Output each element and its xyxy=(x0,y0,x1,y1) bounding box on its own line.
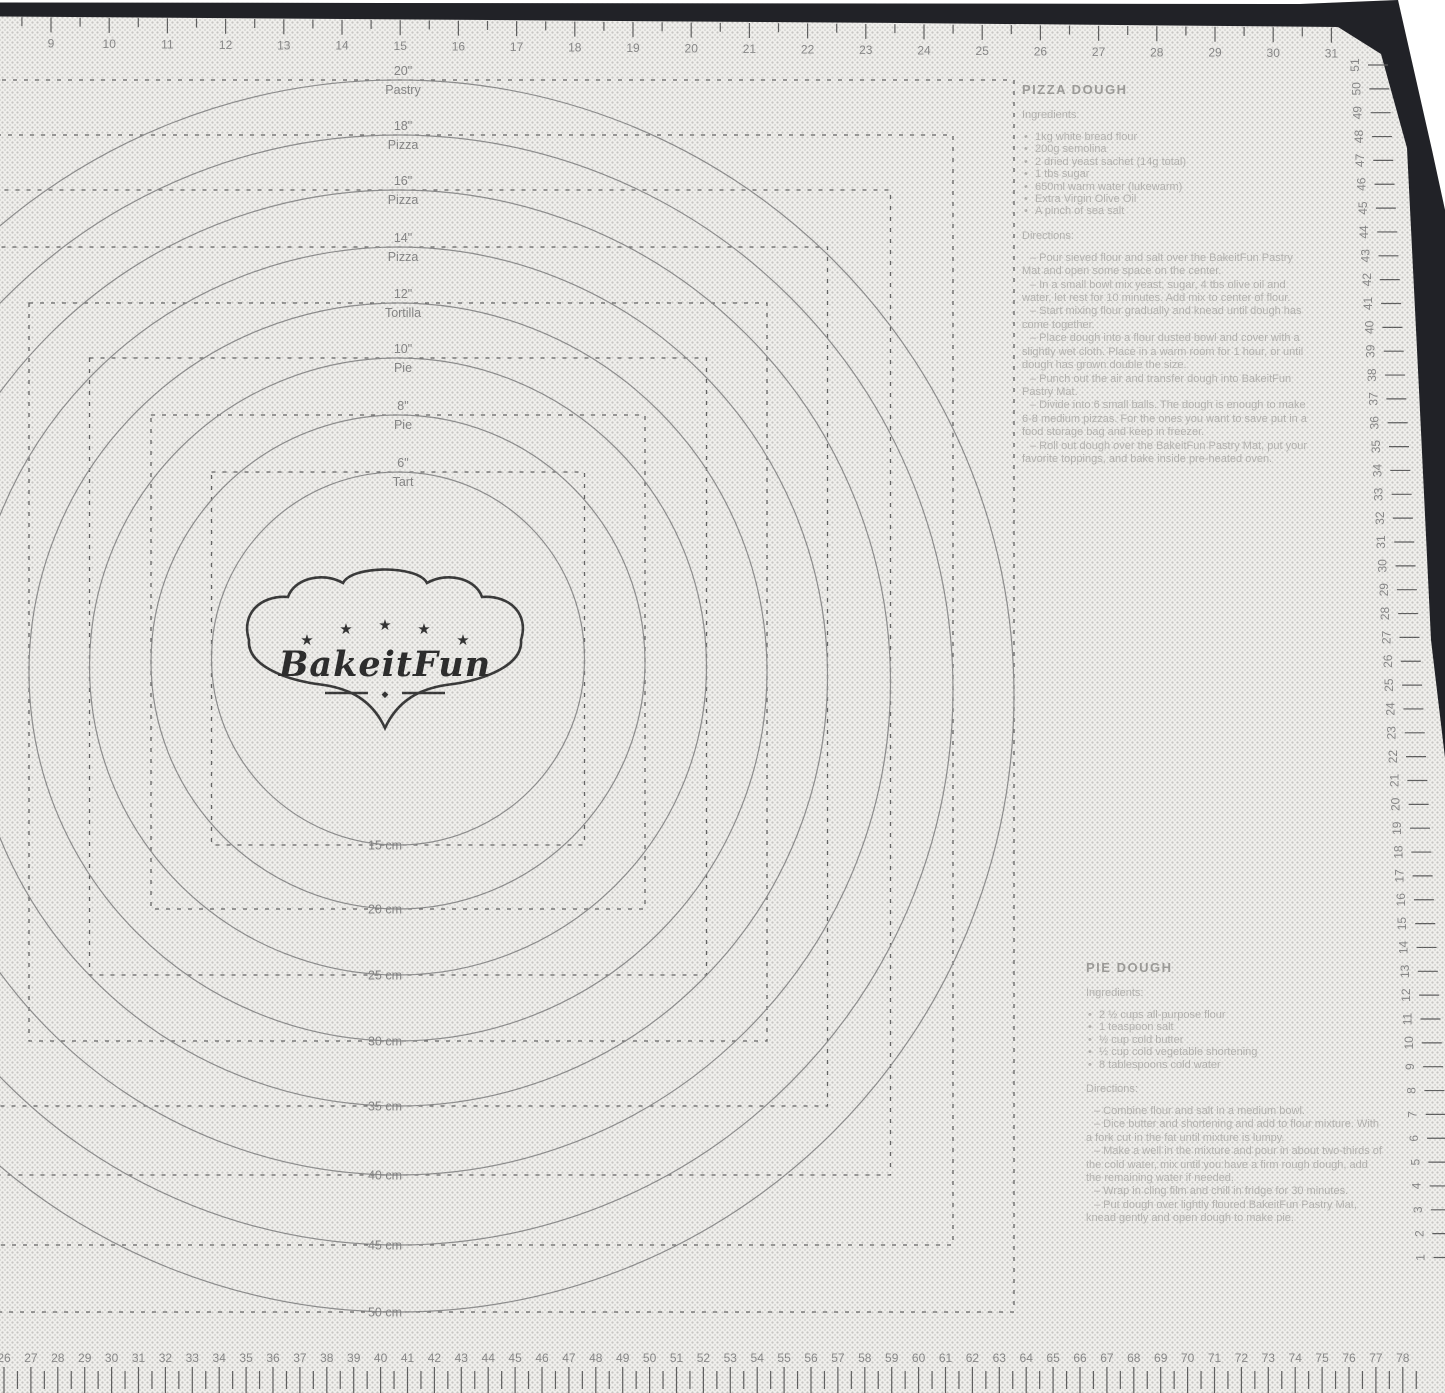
svg-text:65: 65 xyxy=(1046,1351,1060,1365)
svg-text:10": 10" xyxy=(394,342,412,356)
svg-text:57: 57 xyxy=(831,1351,845,1365)
svg-text:17: 17 xyxy=(1393,869,1407,883)
svg-text:21: 21 xyxy=(1387,774,1401,788)
svg-text:25: 25 xyxy=(976,44,990,58)
svg-text:43: 43 xyxy=(455,1351,469,1365)
star-icon: ★ xyxy=(378,616,391,634)
svg-text:10: 10 xyxy=(103,37,117,51)
svg-text:39: 39 xyxy=(1364,344,1378,358)
svg-text:Pizza: Pizza xyxy=(388,193,419,207)
svg-text:46: 46 xyxy=(535,1351,549,1365)
pizza-directions: – Pour sieved flour and salt over the Ba… xyxy=(1022,252,1314,467)
svg-text:9: 9 xyxy=(48,36,55,50)
svg-text:45: 45 xyxy=(508,1351,522,1365)
svg-text:21: 21 xyxy=(743,42,757,56)
svg-text:51: 51 xyxy=(1348,58,1362,72)
svg-text:12": 12" xyxy=(394,287,412,301)
ingredient-item: 650ml warm water (lukewarm) xyxy=(1022,181,1314,193)
svg-text:Pizza: Pizza xyxy=(388,250,419,264)
svg-text:18: 18 xyxy=(568,41,582,55)
svg-text:28: 28 xyxy=(1150,45,1164,59)
direction-step: – Put dough over lightly floured BakeitF… xyxy=(1086,1199,1386,1226)
direction-step: – Wrap in cling film and chill in fridge… xyxy=(1086,1185,1386,1198)
dashed-squares xyxy=(0,80,1014,1312)
svg-text:6: 6 xyxy=(1407,1135,1421,1142)
ingredient-item: 2 dried yeast sachet (14g total) xyxy=(1022,156,1314,168)
direction-step: – Combine flour and salt in a medium bow… xyxy=(1086,1105,1386,1118)
svg-text:12: 12 xyxy=(219,38,233,52)
svg-text:Tortilla: Tortilla xyxy=(385,306,421,320)
svg-text:22: 22 xyxy=(801,42,815,56)
svg-text:37: 37 xyxy=(293,1351,307,1365)
svg-text:61: 61 xyxy=(939,1351,953,1365)
svg-text:16: 16 xyxy=(452,40,466,54)
svg-text:42: 42 xyxy=(1360,273,1374,287)
svg-text:30: 30 xyxy=(1267,46,1281,60)
svg-text:29: 29 xyxy=(1377,583,1391,597)
svg-text:10: 10 xyxy=(1402,1036,1416,1050)
svg-text:Pizza: Pizza xyxy=(388,138,419,152)
direction-step: – Divide into 6 small balls. The dough i… xyxy=(1022,399,1314,439)
svg-text:3: 3 xyxy=(1411,1206,1425,1213)
svg-text:38: 38 xyxy=(320,1351,334,1365)
svg-text:34: 34 xyxy=(213,1351,227,1365)
svg-text:48: 48 xyxy=(589,1351,603,1365)
svg-text:Tart: Tart xyxy=(393,475,414,489)
svg-text:24: 24 xyxy=(917,43,931,57)
direction-step: – Punch out the air and transfer dough i… xyxy=(1022,373,1314,400)
svg-text:15: 15 xyxy=(394,39,408,53)
pizza-dough-title: PIZZA DOUGH xyxy=(1022,82,1314,97)
svg-text:37: 37 xyxy=(1366,392,1380,406)
direction-step: – Roll out dough over the BakeitFun Past… xyxy=(1022,440,1314,467)
svg-text:31: 31 xyxy=(1325,47,1339,61)
svg-text:25 cm: 25 cm xyxy=(368,969,402,983)
svg-text:49: 49 xyxy=(1351,106,1365,120)
svg-text:67: 67 xyxy=(1100,1351,1114,1365)
circle-size-labels: 20"Pastry50 cm18"Pizza45 cm16"Pizza40 cm… xyxy=(368,64,421,1320)
svg-text:73: 73 xyxy=(1262,1351,1276,1365)
svg-text:6": 6" xyxy=(397,456,408,470)
ingredient-item: 8 tablespoons cold water xyxy=(1086,1059,1386,1071)
pastry-mat-photo: 20"Pastry50 cm18"Pizza45 cm16"Pizza40 cm… xyxy=(0,0,1445,1393)
svg-text:36: 36 xyxy=(1368,416,1382,430)
svg-text:42: 42 xyxy=(428,1351,442,1365)
svg-text:59: 59 xyxy=(885,1351,899,1365)
svg-text:44: 44 xyxy=(482,1351,496,1365)
ingredient-item: 1kg white bread flour xyxy=(1022,131,1314,143)
svg-text:41: 41 xyxy=(1361,297,1375,311)
svg-text:56: 56 xyxy=(804,1351,818,1365)
svg-text:40: 40 xyxy=(374,1351,388,1365)
ingredient-item: ½ cup cold butter xyxy=(1086,1034,1386,1046)
star-icon: ★ xyxy=(417,620,430,638)
svg-text:24: 24 xyxy=(1383,702,1397,716)
direction-step: – Dice butter and shortening and add to … xyxy=(1086,1118,1386,1145)
svg-text:9: 9 xyxy=(1403,1063,1417,1070)
svg-text:33: 33 xyxy=(186,1351,200,1365)
svg-text:32: 32 xyxy=(159,1351,173,1365)
ingredient-item: A pinch of sea salt xyxy=(1022,205,1314,217)
svg-text:Pie: Pie xyxy=(394,361,412,375)
svg-text:1: 1 xyxy=(1414,1254,1428,1261)
svg-text:35: 35 xyxy=(1369,440,1383,454)
direction-step: – In a small bowl mix yeast, sugar, 4 tb… xyxy=(1022,279,1314,306)
svg-text:70: 70 xyxy=(1181,1351,1195,1365)
svg-text:62: 62 xyxy=(966,1351,980,1365)
svg-text:4: 4 xyxy=(1410,1182,1424,1189)
svg-text:55: 55 xyxy=(777,1351,791,1365)
svg-text:38: 38 xyxy=(1365,368,1379,382)
svg-text:60: 60 xyxy=(912,1351,926,1365)
svg-text:27: 27 xyxy=(24,1351,38,1365)
svg-text:72: 72 xyxy=(1235,1351,1249,1365)
svg-text:29: 29 xyxy=(78,1351,92,1365)
svg-text:11: 11 xyxy=(161,37,174,51)
brand-logo: ★★★★★ BakeitFun ◆ xyxy=(247,570,523,729)
svg-text:34: 34 xyxy=(1370,463,1384,477)
pizza-ingredients-list: 1kg white bread flour200g semolina2 drie… xyxy=(1022,131,1314,218)
svg-text:50 cm: 50 cm xyxy=(368,1306,402,1320)
svg-text:51: 51 xyxy=(670,1351,684,1365)
svg-text:43: 43 xyxy=(1358,249,1372,263)
svg-text:26: 26 xyxy=(0,1351,11,1365)
svg-text:68: 68 xyxy=(1127,1351,1141,1365)
svg-text:71: 71 xyxy=(1208,1351,1222,1365)
svg-text:35 cm: 35 cm xyxy=(368,1100,402,1114)
svg-text:35: 35 xyxy=(239,1351,253,1365)
svg-text:54: 54 xyxy=(751,1351,765,1365)
svg-text:58: 58 xyxy=(858,1351,872,1365)
svg-text:27: 27 xyxy=(1379,630,1393,644)
svg-text:27: 27 xyxy=(1092,45,1106,59)
pizza-ingredients-label: Ingredients: xyxy=(1022,109,1314,121)
brand-name: BakeitFun xyxy=(278,644,491,685)
svg-text:36: 36 xyxy=(266,1351,280,1365)
pizza-dough-recipe: PIZZA DOUGH Ingredients: 1kg white bread… xyxy=(1022,82,1314,466)
svg-text:40 cm: 40 cm xyxy=(368,1169,402,1183)
svg-text:15 cm: 15 cm xyxy=(368,839,402,853)
logo-ornament: ◆ xyxy=(325,690,445,700)
direction-step: – Place dough into a flour dusted bowl a… xyxy=(1022,332,1314,372)
svg-text:23: 23 xyxy=(1385,726,1399,740)
svg-text:64: 64 xyxy=(1020,1351,1034,1365)
svg-text:19: 19 xyxy=(1390,821,1404,835)
ingredient-item: 1 teaspoon salt xyxy=(1086,1021,1386,1033)
svg-text:14": 14" xyxy=(394,231,412,245)
ingredient-item: Extra Virgin Olive Oil xyxy=(1022,193,1314,205)
svg-text:12: 12 xyxy=(1399,988,1413,1002)
svg-text:Pastry: Pastry xyxy=(385,83,421,97)
svg-text:26: 26 xyxy=(1034,44,1048,58)
svg-text:46: 46 xyxy=(1355,177,1369,191)
svg-text:30: 30 xyxy=(105,1351,119,1365)
svg-text:47: 47 xyxy=(562,1351,576,1365)
svg-text:18": 18" xyxy=(394,119,412,133)
ingredient-item: 2 ½ cups all-purpose flour xyxy=(1086,1009,1386,1021)
svg-text:5: 5 xyxy=(1408,1158,1422,1165)
svg-text:28: 28 xyxy=(51,1351,65,1365)
svg-text:15: 15 xyxy=(1395,917,1409,931)
diamond-icon: ◆ xyxy=(382,690,389,700)
pizza-directions-label: Directions: xyxy=(1022,230,1314,242)
pie-directions: – Combine flour and salt in a medium bow… xyxy=(1086,1105,1386,1226)
svg-text:20: 20 xyxy=(685,42,699,56)
svg-text:31: 31 xyxy=(1374,535,1388,549)
ingredient-item: 200g semolina xyxy=(1022,143,1314,155)
svg-text:44: 44 xyxy=(1357,225,1371,239)
pie-dough-recipe: PIE DOUGH Ingredients: 2 ½ cups all-purp… xyxy=(1086,960,1386,1226)
svg-text:20 cm: 20 cm xyxy=(368,903,402,917)
svg-text:16: 16 xyxy=(1394,893,1408,907)
svg-text:74: 74 xyxy=(1289,1351,1303,1365)
pie-ingredients-list: 2 ½ cups all-purpose flour1 teaspoon sal… xyxy=(1086,1009,1386,1071)
svg-text:52: 52 xyxy=(697,1351,711,1365)
svg-text:76: 76 xyxy=(1342,1351,1356,1365)
ingredient-item: ½ cup cold vegetable shortening xyxy=(1086,1046,1386,1058)
svg-text:66: 66 xyxy=(1073,1351,1087,1365)
svg-text:7: 7 xyxy=(1406,1111,1420,1118)
svg-text:23: 23 xyxy=(859,43,873,57)
svg-text:14: 14 xyxy=(1397,940,1411,954)
svg-text:48: 48 xyxy=(1352,130,1366,144)
svg-text:75: 75 xyxy=(1315,1351,1329,1365)
ruler-bottom-cm: 2627282930313233343536373839404142434445… xyxy=(0,1351,1416,1393)
svg-text:50: 50 xyxy=(1349,82,1363,96)
svg-text:30: 30 xyxy=(1376,559,1390,573)
svg-text:20: 20 xyxy=(1389,797,1403,811)
svg-text:28: 28 xyxy=(1378,607,1392,621)
svg-text:13: 13 xyxy=(277,38,291,52)
svg-text:47: 47 xyxy=(1353,153,1367,167)
svg-text:17: 17 xyxy=(510,40,524,54)
svg-text:13: 13 xyxy=(1398,964,1412,978)
svg-text:8: 8 xyxy=(1404,1087,1418,1094)
svg-text:69: 69 xyxy=(1154,1351,1168,1365)
svg-text:31: 31 xyxy=(132,1351,146,1365)
svg-text:53: 53 xyxy=(724,1351,738,1365)
svg-text:39: 39 xyxy=(347,1351,361,1365)
pie-dough-title: PIE DOUGH xyxy=(1086,960,1386,975)
svg-text:18: 18 xyxy=(1391,845,1405,859)
pie-ingredients-label: Ingredients: xyxy=(1086,987,1386,999)
pie-directions-label: Directions: xyxy=(1086,1083,1386,1095)
measuring-circles xyxy=(0,80,1014,1312)
svg-text:45: 45 xyxy=(1356,201,1370,215)
svg-text:29: 29 xyxy=(1208,46,1222,60)
svg-text:26: 26 xyxy=(1381,654,1395,668)
svg-text:14: 14 xyxy=(335,39,349,53)
svg-text:19: 19 xyxy=(626,41,640,55)
svg-text:33: 33 xyxy=(1372,487,1386,501)
svg-text:40: 40 xyxy=(1362,320,1376,334)
svg-text:78: 78 xyxy=(1396,1351,1410,1365)
direction-step: – Pour sieved flour and salt over the Ba… xyxy=(1022,252,1314,279)
svg-text:50: 50 xyxy=(643,1351,657,1365)
svg-text:2: 2 xyxy=(1412,1230,1426,1237)
svg-text:77: 77 xyxy=(1369,1351,1383,1365)
star-icon: ★ xyxy=(339,620,352,638)
svg-text:32: 32 xyxy=(1373,511,1387,525)
svg-text:45 cm: 45 cm xyxy=(368,1239,402,1253)
svg-text:11: 11 xyxy=(1400,1012,1414,1025)
svg-text:25: 25 xyxy=(1382,678,1396,692)
direction-step: – Make a well in the mixture and pour in… xyxy=(1086,1145,1386,1185)
ingredient-item: 1 tbs sugar xyxy=(1022,168,1314,180)
direction-step: – Start mixing flour gradually and knead… xyxy=(1022,305,1314,332)
svg-text:20": 20" xyxy=(394,64,412,78)
svg-text:8": 8" xyxy=(397,399,408,413)
svg-text:16": 16" xyxy=(394,174,412,188)
svg-text:41: 41 xyxy=(401,1351,415,1365)
svg-text:63: 63 xyxy=(993,1351,1007,1365)
svg-text:49: 49 xyxy=(616,1351,630,1365)
svg-text:Pie: Pie xyxy=(394,418,412,432)
svg-text:22: 22 xyxy=(1386,750,1400,764)
svg-text:30 cm: 30 cm xyxy=(368,1035,402,1049)
